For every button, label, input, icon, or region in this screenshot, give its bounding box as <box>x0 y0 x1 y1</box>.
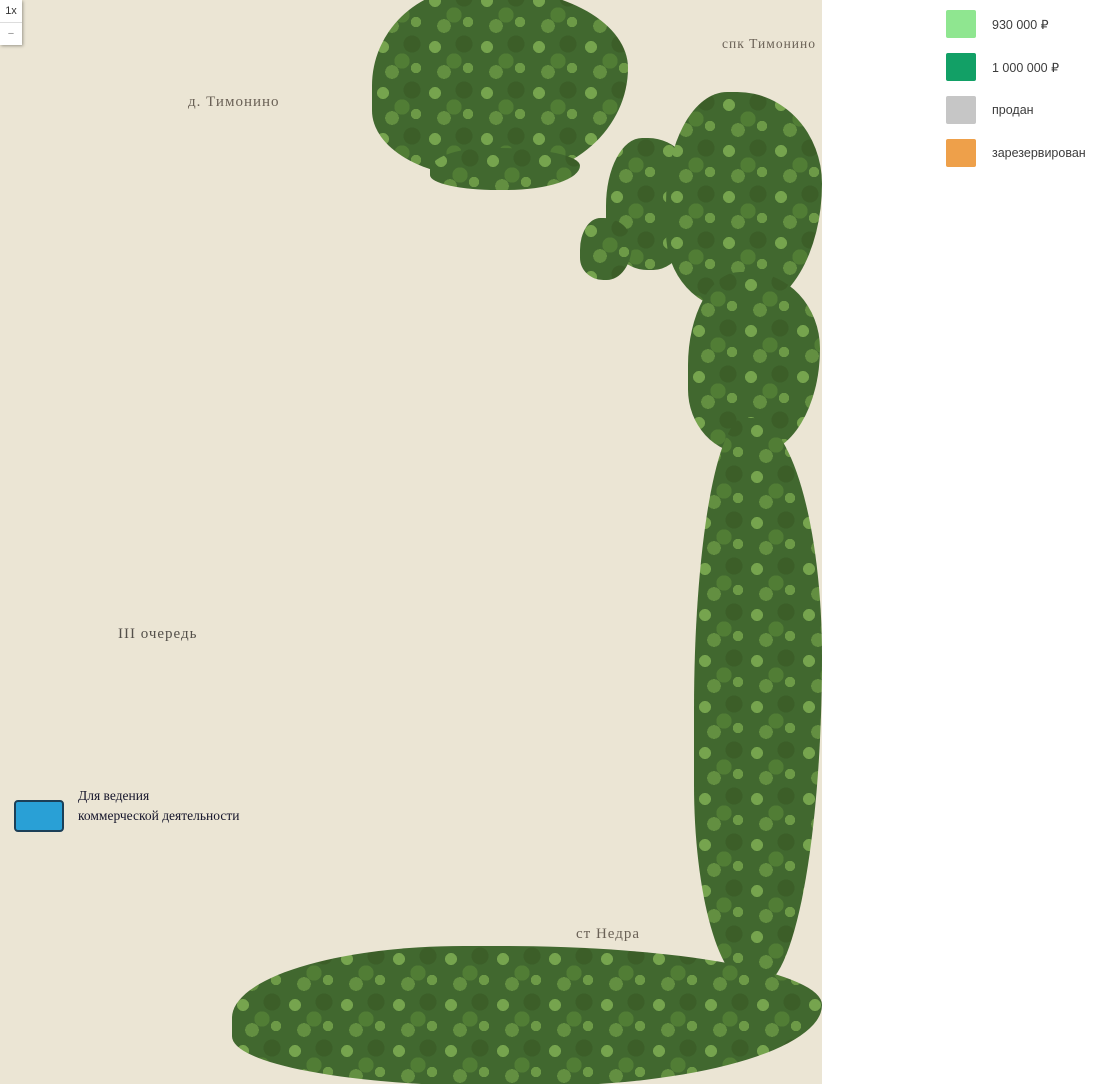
label-spk: спк Тимонино <box>722 36 816 52</box>
legend-row-930: 930 000 ₽ <box>946 10 1049 38</box>
label-phase3: III очередь <box>118 626 197 643</box>
zoom-control: 1x − <box>0 0 22 45</box>
legend-row-sold: продан <box>946 96 1034 124</box>
label-village: д. Тимонино <box>188 94 280 111</box>
legend-row-reserved: зарезервирован <box>946 139 1086 167</box>
legend-swatch-1000 <box>946 53 976 81</box>
zoom-out-button[interactable]: − <box>0 22 22 45</box>
plot-map-page: д. Тимонино спк Тимонино III очередь ст … <box>0 0 1106 1084</box>
forest-area <box>232 946 822 1084</box>
commercial-swatch <box>14 800 64 832</box>
label-nedra: ст Недра <box>576 926 640 943</box>
legend-swatch-930 <box>946 10 976 38</box>
pond <box>398 15 568 155</box>
legend-swatch-reserved <box>946 139 976 167</box>
commercial-legend-text: Для ведения коммерческой деятельности <box>78 786 239 826</box>
zoom-level-button[interactable]: 1x <box>0 0 22 22</box>
legend-row-1000: 1 000 000 ₽ <box>946 53 1059 81</box>
legend-swatch-sold <box>946 96 976 124</box>
